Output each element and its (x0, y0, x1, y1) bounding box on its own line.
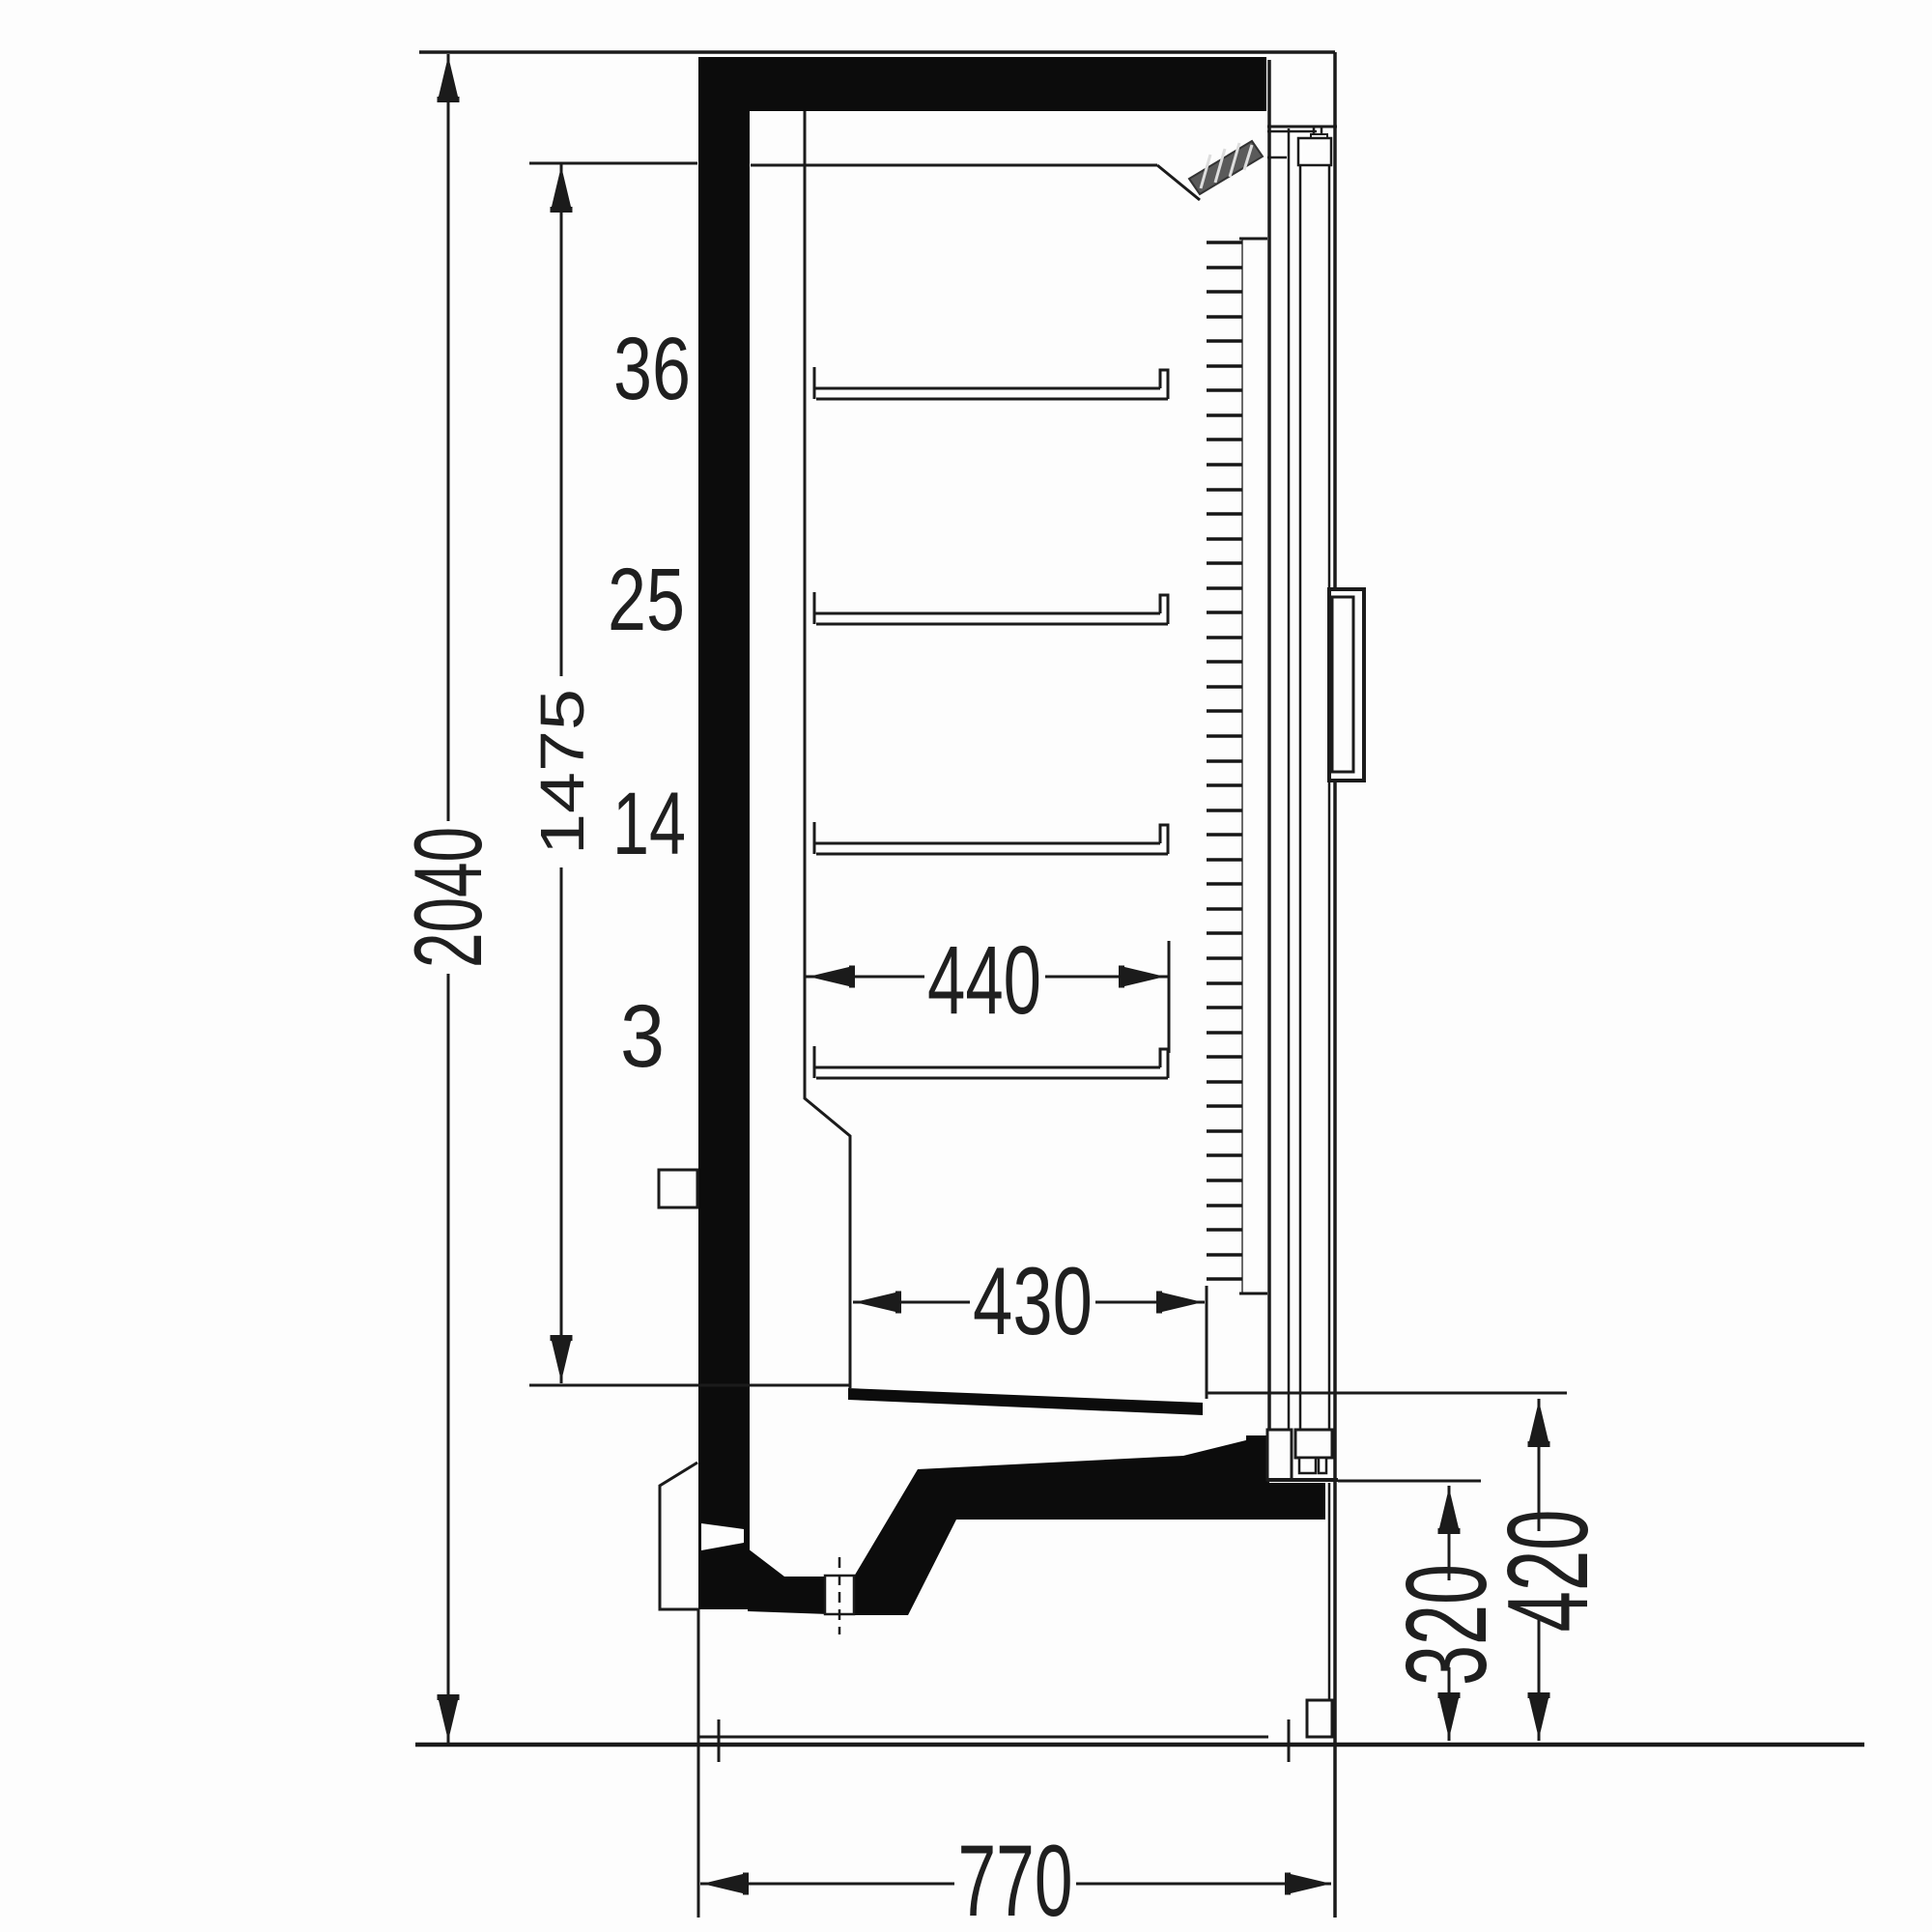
svg-text:440: 440 (927, 926, 1041, 1035)
svg-text:420: 420 (1484, 1510, 1612, 1633)
svg-text:1475: 1475 (527, 689, 597, 855)
svg-text:2040: 2040 (394, 827, 501, 968)
svg-text:430: 430 (973, 1247, 1093, 1354)
svg-text:14: 14 (612, 775, 686, 873)
svg-text:770: 770 (958, 1825, 1073, 1932)
svg-text:25: 25 (608, 551, 685, 649)
svg-text:3: 3 (620, 987, 665, 1086)
svg-text:36: 36 (613, 320, 691, 418)
